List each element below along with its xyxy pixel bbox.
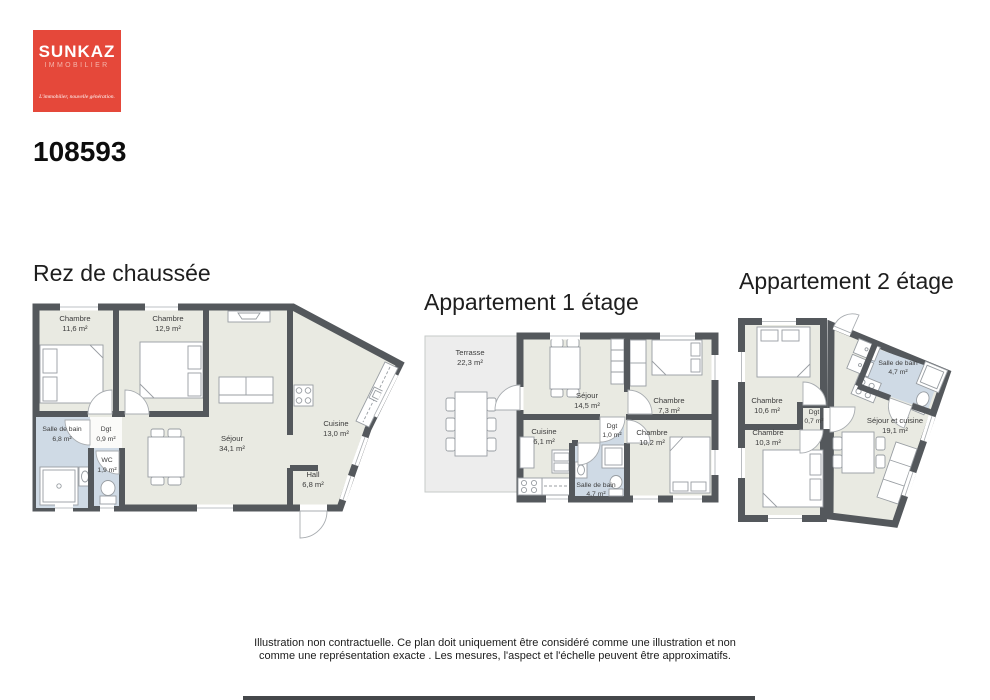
- shower: [40, 467, 78, 505]
- bed-chambre-bottom: [763, 450, 823, 507]
- room-name: Salle de bain: [878, 360, 918, 367]
- tv-console: [228, 311, 270, 322]
- room-area: 10,6 m²: [754, 406, 780, 415]
- agency-logo-brand: SUNKAZ: [39, 43, 116, 60]
- sofa: [219, 377, 273, 403]
- plan-title-ground-floor: Rez de chaussée: [33, 260, 211, 287]
- stove: [294, 385, 313, 406]
- room-name: Dgt: [809, 409, 820, 416]
- room-area: 1,9 m²: [97, 467, 117, 474]
- room-area: 14,5 m²: [574, 401, 600, 410]
- room-area: 4,7 m²: [888, 369, 908, 376]
- plan-title-first-floor: Appartement 1 étage: [424, 289, 639, 316]
- agency-logo-subtitle: IMMOBILIER: [44, 62, 109, 69]
- room-area: 0,9 m²: [96, 436, 116, 443]
- room-name: Dgt: [607, 423, 618, 430]
- room-label-chambre-top: Chambre 10,6 m²: [751, 396, 782, 415]
- room-label-cuisine: Cuisine 13,0 m²: [323, 419, 349, 438]
- room-area: 6,8 m²: [302, 480, 324, 489]
- room-area: 13,0 m²: [323, 429, 349, 438]
- room-name: Séjour et cuisine: [867, 416, 923, 425]
- agency-logo-tagline: L'immobilier, nouvelle génération.: [39, 94, 115, 100]
- room-name: Chambre: [752, 428, 783, 437]
- floor-plan-ground-floor: Chambre 11,6 m² Chambre 12,9 m² Séjour 3…: [25, 290, 420, 545]
- disclaimer-line-1: Illustration non contractuelle. Ce plan …: [0, 637, 990, 650]
- room-name: Séjour: [221, 434, 243, 443]
- room-name: Chambre: [59, 314, 90, 323]
- agency-logo: SUNKAZ IMMOBILIER L'immobilier, nouvelle…: [33, 30, 121, 112]
- room-area: 19,1 m²: [882, 426, 908, 435]
- wardrobe-chambre: [630, 340, 646, 386]
- room-label-cuisine: Cuisine 6,1 m²: [531, 427, 556, 446]
- room-name: Chambre: [751, 396, 782, 405]
- room-area: 7,3 m²: [658, 406, 680, 415]
- bottom-divider: [243, 696, 755, 700]
- floor-plan-first-floor: Terrasse 22,3 m² Séjour 14,5 m² Chambre …: [420, 325, 730, 515]
- room-name: Séjour: [576, 391, 598, 400]
- toilet: [100, 481, 116, 505]
- room-name: Salle de bain: [576, 482, 616, 489]
- room-label-chambre-1: Chambre 11,6 m²: [59, 314, 90, 333]
- room-area: 10,3 m²: [755, 438, 781, 447]
- room-area: 10,2 m²: [639, 438, 665, 447]
- room-area: 22,3 m²: [457, 358, 483, 367]
- shower: [602, 445, 625, 468]
- bed-chambre-large: [670, 437, 710, 493]
- room-label-sejour: Séjour 14,5 m²: [574, 391, 600, 410]
- room-area: 4,7 m²: [586, 491, 606, 498]
- room-label-chambre-large: Chambre 10,2 m²: [636, 428, 667, 447]
- room-label-chambre-bottom: Chambre 10,3 m²: [752, 428, 783, 447]
- room-name: Salle de bain: [42, 426, 82, 433]
- room-name: Cuisine: [531, 427, 556, 436]
- disclaimer-line-2: comme une représentation exacte . Les me…: [0, 650, 990, 663]
- plan-title-second-floor: Appartement 2 étage: [739, 268, 954, 295]
- room-name: Cuisine: [323, 419, 348, 428]
- listing-reference: 108593: [33, 136, 126, 168]
- room-label-chambre-2: Chambre 12,9 m²: [152, 314, 183, 333]
- room-name: Chambre: [653, 396, 684, 405]
- floor-plan-page: SUNKAZ IMMOBILIER L'immobilier, nouvelle…: [0, 0, 990, 700]
- room-label-terrasse: Terrasse 22,3 m²: [455, 348, 484, 367]
- room-area: 1,0 m²: [602, 432, 622, 439]
- room-area: 6,1 m²: [533, 437, 555, 446]
- bed-chambre-2: [140, 342, 203, 398]
- room-name: Terrasse: [455, 348, 484, 357]
- room-name: Chambre: [636, 428, 667, 437]
- bed-chambre-small: [652, 340, 702, 375]
- room-area: 0,7 m²: [804, 418, 824, 425]
- bed-chambre-1: [40, 345, 103, 403]
- room-name: WC: [101, 457, 112, 464]
- room-name: Chambre: [152, 314, 183, 323]
- disclaimer: Illustration non contractuelle. Ce plan …: [0, 637, 990, 662]
- stove: [518, 478, 542, 495]
- room-name: Hall: [306, 470, 319, 479]
- wardrobe-sejour: [611, 339, 624, 384]
- dining-table: [550, 339, 580, 397]
- room-area: 12,9 m²: [155, 324, 181, 333]
- room-area: 34,1 m²: [219, 444, 245, 453]
- room-label-sejour: Séjour 34,1 m²: [219, 434, 245, 453]
- floor-plan-second-floor: Chambre 10,6 m² Chambre 10,3 m² Dgt 0,7 …: [735, 300, 975, 535]
- bed-chambre-top: [757, 327, 810, 377]
- room-name: Dgt: [101, 426, 112, 433]
- room-area: 6,8 m²: [52, 436, 72, 443]
- dining-table: [148, 429, 184, 485]
- room-area: 11,6 m²: [62, 324, 88, 333]
- terrace-table: [446, 392, 496, 456]
